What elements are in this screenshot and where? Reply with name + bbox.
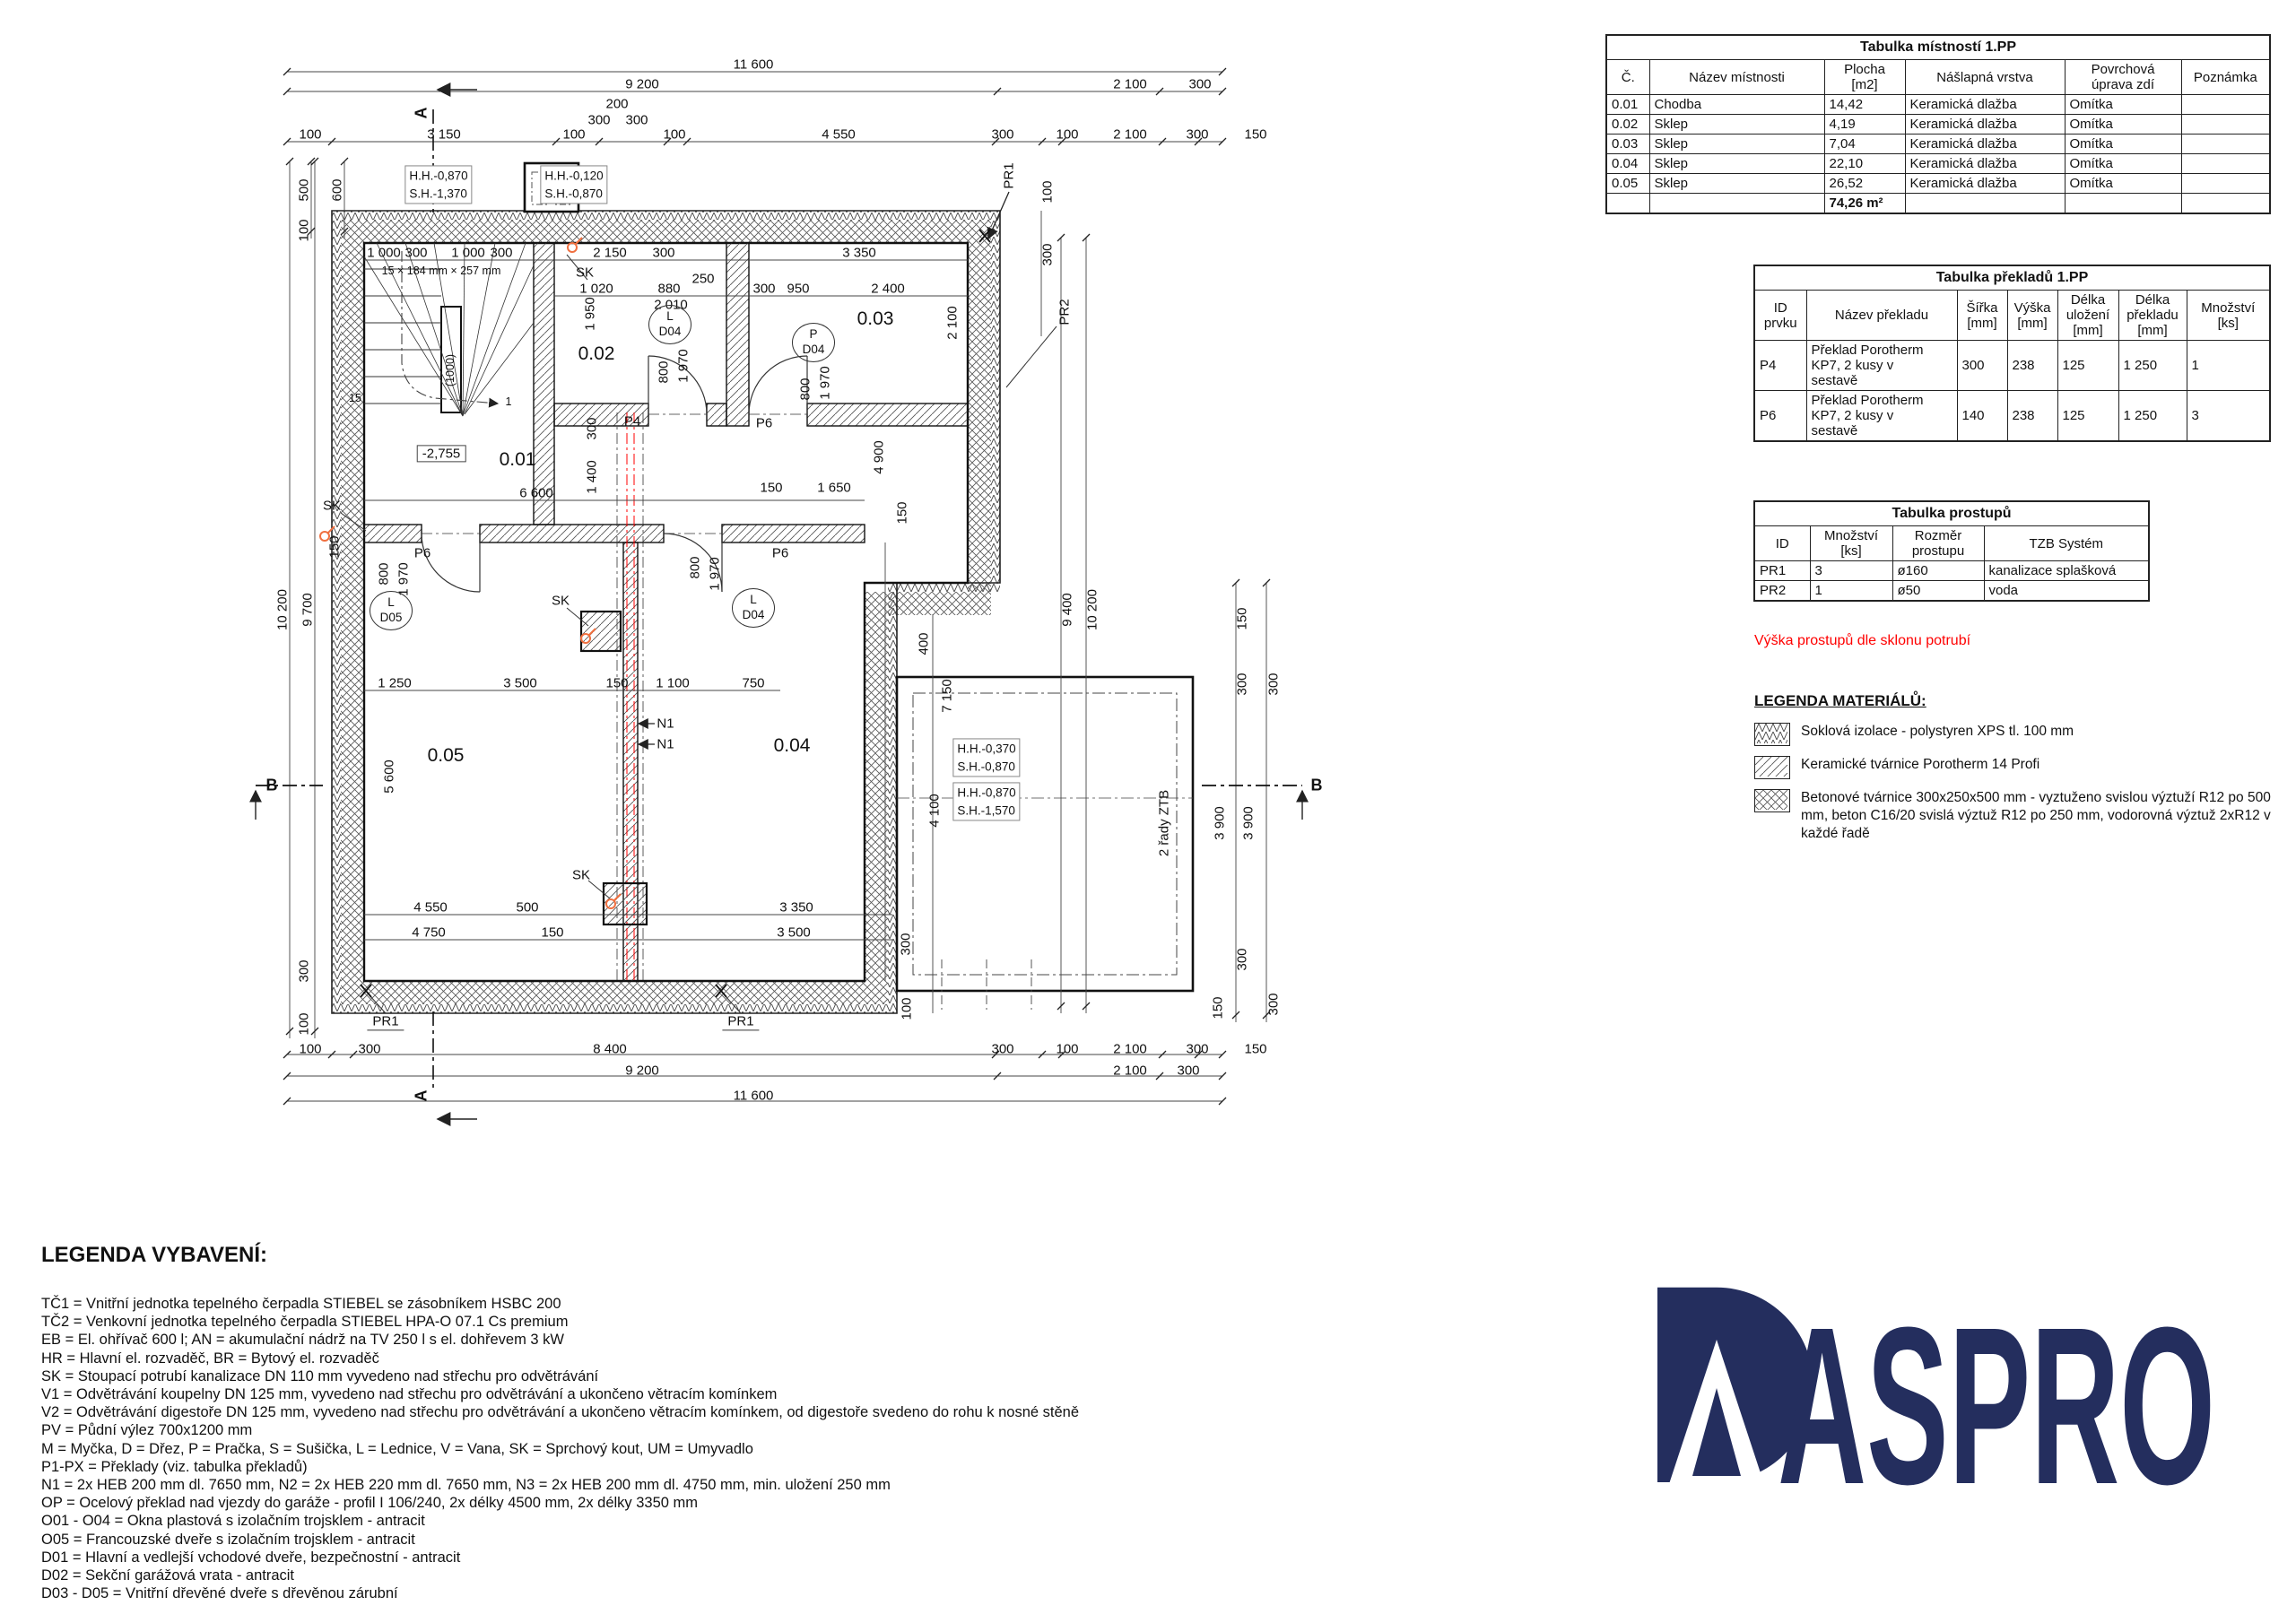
dimension-label: 2 100: [1113, 1041, 1147, 1056]
dimension-label: 300: [490, 245, 512, 260]
table-cell: Keramická dlažba: [1905, 174, 2065, 194]
table-cell: 0.01: [1606, 95, 1649, 115]
column-header: Nášlapná vrstva: [1905, 60, 2065, 95]
dimension-label: 400: [916, 632, 931, 655]
table-cell: Překlad Porotherm KP7, 2 kusy v sestavě: [1806, 391, 1957, 442]
dimension-label: 4 550: [822, 126, 856, 142]
equipment-legend-lines: TČ1 = Vnitřní jednotka tepelného čerpadl…: [41, 1295, 1530, 1602]
dimension-label: 11 600: [734, 56, 774, 72]
column-header: ID: [1754, 526, 1810, 561]
column-header: Výška [mm]: [2007, 291, 2057, 341]
equipment-legend-line: D02 = Sekční garážová vrata - antracit: [41, 1567, 1530, 1584]
room-number-label: 0.03: [857, 308, 894, 330]
table-title: Tabulka místností 1.PP: [1606, 35, 2270, 60]
dimension-label: 2 100: [1113, 1063, 1147, 1078]
table-cell: 0.02: [1606, 115, 1649, 135]
dimension-label: 1 950: [582, 297, 597, 331]
equipment-legend-line: M = Myčka, D = Dřez, P = Pračka, S = Suš…: [41, 1440, 1530, 1458]
table-cell: Sklep: [1649, 174, 1824, 194]
dimension-label: SK: [552, 593, 570, 608]
equipment-legend-line: TČ1 = Vnitřní jednotka tepelného čerpadl…: [41, 1295, 1530, 1313]
logo-text: ASPRO: [1778, 1280, 2215, 1496]
dimension-label: 100: [562, 126, 585, 142]
dimension-label: 950: [787, 281, 809, 296]
table-cell: 14,42: [1824, 95, 1905, 115]
dimension-label: 2 100: [944, 306, 960, 340]
dimension-label: (1000): [444, 354, 457, 386]
dimension-label: 300: [625, 112, 648, 127]
table-cell: [2181, 194, 2270, 214]
dimension-label: 1 970: [396, 562, 411, 596]
dimension-label: 1: [506, 395, 512, 408]
dimension-label: -2,755: [417, 445, 466, 462]
table-row: PR13ø160kanalizace splašková: [1754, 561, 2149, 581]
door-tag: L D04: [732, 588, 775, 628]
equipment-legend-line: P1-PX = Překlady (viz. tabulka překladů): [41, 1458, 1530, 1476]
equipment-legend-line: TČ2 = Venkovní jednotka tepelného čerpad…: [41, 1313, 1530, 1331]
dimension-label: 300: [296, 959, 311, 982]
dimension-label: 300: [991, 1041, 1013, 1056]
table-cell: 0.03: [1606, 135, 1649, 154]
dimension-label: 2 100: [1113, 76, 1147, 91]
table-cell: [2065, 194, 2181, 214]
dimension-label: 100: [296, 1012, 311, 1035]
dimension-label: 100: [663, 126, 685, 142]
equipment-legend-line: EB = El. ohřívač 600 l; AN = akumulační …: [41, 1331, 1530, 1349]
dimension-label: 2 100: [1113, 126, 1147, 142]
dimension-label: 600: [329, 178, 344, 201]
dimension-label: PR1: [722, 1013, 759, 1030]
dimension-label: 9 200: [625, 1063, 659, 1078]
table-cell: 1 250: [2118, 391, 2187, 442]
table-title: Tabulka překladů 1.PP: [1754, 265, 2270, 291]
table-cell: [1905, 194, 2065, 214]
table-cell: voda: [1984, 581, 2149, 602]
table-cell: PR2: [1754, 581, 1810, 602]
table-row: 0.05Sklep26,52Keramická dlažbaOmítka: [1606, 174, 2270, 194]
dimension-label: 3 500: [777, 924, 811, 940]
dimension-label: SK: [576, 265, 594, 280]
dimension-label: 1 970: [817, 366, 832, 400]
equipment-legend-line: O05 = Francouzské dveře s izolačním troj…: [41, 1531, 1530, 1549]
room-number-label: 0.04: [774, 735, 811, 757]
dimension-label: 4 100: [926, 794, 942, 828]
dimension-label: 100: [299, 126, 321, 142]
column-header: TZB Systém: [1984, 526, 2149, 561]
dimension-label: 3 350: [842, 245, 876, 260]
dimension-label: P6: [756, 415, 772, 430]
table-cell: Omítka: [2065, 154, 2181, 174]
dimension-label: 880: [657, 281, 680, 296]
dimension-label: 11 600: [734, 1088, 774, 1103]
level-annotation: H.H.-0,870 S.H.-1,570: [952, 782, 1020, 820]
column-header: ID prvku: [1754, 291, 1806, 341]
table-cell: 74,26 m²: [1824, 194, 1905, 214]
dimension-label: 2 400: [871, 281, 905, 296]
equipment-legend-line: OP = Ocelový překlad nad vjezdy do garáž…: [41, 1494, 1530, 1512]
dimension-label: 300: [1188, 76, 1211, 91]
dimension-label: 150: [1244, 1041, 1266, 1056]
table-cell: 125: [2057, 341, 2118, 391]
material-legend-item: Keramické tvárnice Porotherm 14 Profi: [1754, 756, 2279, 779]
table-cell: 3: [1810, 561, 1892, 581]
dimension-label: 8 400: [593, 1041, 627, 1056]
room-number-label: 0.01: [500, 449, 536, 471]
dimension-label: 800: [376, 562, 391, 585]
door-tag: L D04: [648, 305, 691, 344]
room-number-label: 0.05: [428, 745, 465, 767]
table-cell: [2181, 135, 2270, 154]
dimension-label: 15: [349, 392, 361, 404]
daspro-logo-graphic: ASPRO: [1650, 1280, 2224, 1496]
dimension-label: 2 řady ZTB: [1156, 790, 1171, 856]
table-cell: ø50: [1892, 581, 1984, 602]
equipment-legend-line: HR = Hlavní el. rozvaděč, BR = Bytový el…: [41, 1350, 1530, 1367]
table-cell: Omítka: [2065, 115, 2181, 135]
sk-shaft: [604, 883, 647, 924]
table-cell: [2181, 115, 2270, 135]
dimension-label: 1 000: [367, 245, 401, 260]
table-total-row: 74,26 m²: [1606, 194, 2270, 214]
table-cell: 1 250: [2118, 341, 2187, 391]
dimension-label: 300: [1234, 673, 1249, 695]
table-cell: Omítka: [2065, 174, 2181, 194]
dimension-label: 500: [296, 178, 311, 201]
penetration-note: Výška prostupů dle sklonu potrubí: [1754, 633, 1970, 649]
table-cell: 125: [2057, 391, 2118, 442]
sk-shaft: [581, 612, 621, 651]
drawing-sheet: 11 6009 2002 1003002003003001003 1501001…: [0, 0, 2296, 1623]
table-row: PR21ø50voda: [1754, 581, 2149, 602]
table-cell: [2181, 154, 2270, 174]
column-header: Č.: [1606, 60, 1649, 95]
table-cell: 0.04: [1606, 154, 1649, 174]
interior-wall: [480, 525, 664, 542]
interior-wall: [726, 243, 749, 426]
dimension-label: 200: [605, 96, 628, 111]
dimension-label: 250: [691, 271, 714, 286]
dimension-label: 150: [1234, 607, 1249, 629]
table-cell: ø160: [1892, 561, 1984, 581]
dimension-label: P6: [772, 545, 788, 560]
table-title: Tabulka prostupů: [1754, 501, 2149, 526]
section-mark-label: B: [266, 777, 278, 795]
dimension-label: PR1: [1001, 162, 1016, 188]
table-cell: 238: [2007, 391, 2057, 442]
table-cell: 1: [1810, 581, 1892, 602]
table-row: 0.02Sklep4,19Keramická dlažbaOmítka: [1606, 115, 2270, 135]
dimension-label: SK: [572, 867, 590, 882]
dimension-label: 150: [541, 924, 563, 940]
dimension-label: 100: [899, 997, 914, 1020]
section-mark-label: A: [413, 108, 431, 119]
dimension-label: 100: [299, 1041, 321, 1056]
column-header: Délka překladu [mm]: [2118, 291, 2187, 341]
dimension-label: 3 900: [1212, 806, 1227, 840]
penetrations-table: Tabulka prostupůIDMnožství [ks]Rozměr pr…: [1753, 500, 2150, 602]
dimension-label: P6: [414, 545, 430, 560]
dimension-label: 300: [991, 126, 1013, 142]
dimension-label: 1 250: [378, 675, 412, 690]
table-cell: P4: [1754, 341, 1806, 391]
equipment-legend-title: LEGENDA VYBAVENÍ:: [41, 1243, 1530, 1268]
table-row: P6Překlad Porotherm KP7, 2 kusy v sestav…: [1754, 391, 2270, 442]
table-cell: [1649, 194, 1824, 214]
equipment-legend-line: V2 = Odvětrávání digestoře DN 125 mm, vy…: [41, 1403, 1530, 1421]
table-cell: P6: [1754, 391, 1806, 442]
insulation-hatch-icon: [1754, 723, 1790, 746]
dimension-label: 300: [587, 112, 610, 127]
material-legend-text: Betonové tvárnice 300x250x500 mm - vyztu…: [1801, 789, 2279, 843]
table-cell: 1: [2187, 341, 2270, 391]
dimension-label: 1 970: [675, 349, 691, 383]
dimension-label: 9 400: [1059, 593, 1074, 627]
dimension-label: 10 200: [274, 589, 290, 630]
dimension-label: 100: [1056, 126, 1078, 142]
equipment-legend-line: O01 - O04 = Okna plastová s izolačním tr…: [41, 1512, 1530, 1530]
dimension-label: 300: [404, 245, 427, 260]
table-cell: 140: [1957, 391, 2007, 442]
stair-risers: [364, 269, 441, 404]
dimension-label: 6 600: [519, 485, 553, 500]
dimension-label: 100: [1056, 1041, 1078, 1056]
column-header: Poznámka: [2181, 60, 2270, 95]
table-row: P4Překlad Porotherm KP7, 2 kusy v sestav…: [1754, 341, 2270, 391]
ceramic-hatch-icon: [1754, 756, 1790, 779]
table-cell: kanalizace splašková: [1984, 561, 2149, 581]
dimension-label: 1 400: [584, 460, 599, 494]
table-cell: 22,10: [1824, 154, 1905, 174]
door-tag: P D04: [792, 323, 835, 362]
dimension-label: 1 020: [579, 281, 613, 296]
dimension-label: 1 000: [451, 245, 485, 260]
dimension-label: 2 150: [593, 245, 627, 260]
dimension-label: 300: [1186, 126, 1208, 142]
level-annotation: H.H.-0,120 S.H.-0,870: [540, 165, 607, 204]
material-legend-text: Soklová izolace - polystyren XPS tl. 100…: [1801, 723, 2074, 741]
dimension-label: 150: [1210, 996, 1225, 1019]
table-cell: Sklep: [1649, 154, 1824, 174]
table-cell: 238: [2007, 341, 2057, 391]
rooms-table: Tabulka místností 1.PPČ.Název místnostiP…: [1605, 34, 2271, 214]
table-row: 0.03Sklep7,04Keramická dlažbaOmítka: [1606, 135, 2270, 154]
dimension-label: N1: [657, 736, 674, 751]
table-cell: Chodba: [1649, 95, 1824, 115]
column-header: Množství [ks]: [2187, 291, 2270, 341]
dimension-label: 4 750: [412, 924, 446, 940]
dimension-label: 800: [797, 378, 813, 400]
dimension-label: 3 350: [779, 899, 813, 915]
column-header: Název místnosti: [1649, 60, 1824, 95]
table-cell: Keramická dlažba: [1905, 95, 2065, 115]
dimension-label: 10 200: [1084, 589, 1100, 630]
dimension-label: 750: [742, 675, 764, 690]
dimension-label: 1 650: [817, 480, 851, 495]
dimension-label: 150: [894, 501, 909, 524]
ztb-structure: [897, 677, 1193, 991]
table-cell: Keramická dlažba: [1905, 154, 2065, 174]
dimension-label: 300: [898, 933, 913, 955]
table-row: 0.01Chodba14,42Keramická dlažbaOmítka: [1606, 95, 2270, 115]
material-legend-item: Soklová izolace - polystyren XPS tl. 100…: [1754, 723, 2279, 746]
dimension-label: PR1: [367, 1013, 404, 1030]
dimension-label: 500: [516, 899, 538, 915]
table-cell: 0.05: [1606, 174, 1649, 194]
dimension-label: 9 700: [300, 593, 315, 627]
section-mark-label: A: [413, 1090, 431, 1102]
material-legend-title: LEGENDA MATERIÁLŮ:: [1754, 692, 2279, 710]
table-cell: 3: [2187, 391, 2270, 442]
dimension-label: 800: [656, 360, 671, 383]
dimension-label: 300: [1177, 1063, 1199, 1078]
dimension-label: 150: [1244, 126, 1266, 142]
daspro-logo: ASPRO: [1650, 1280, 2224, 1496]
dimension-label: 3 500: [503, 675, 537, 690]
dimension-label: 9 200: [625, 76, 659, 91]
lintels-table: Tabulka překladů 1.PPID prvkuNázev překl…: [1753, 265, 2271, 442]
equipment-legend-line: D01 = Hlavní a vedlejší vchodové dveře, …: [41, 1549, 1530, 1567]
material-legend: LEGENDA MATERIÁLŮ: Soklová izolace - pol…: [1754, 692, 2279, 853]
level-annotation: H.H.-0,370 S.H.-0,870: [952, 738, 1020, 777]
material-legend-text: Keramické tvárnice Porotherm 14 Profi: [1801, 756, 2039, 774]
dimension-label: 300: [1186, 1041, 1208, 1056]
table-cell: [2181, 174, 2270, 194]
dimension-label: 300: [358, 1041, 380, 1056]
interior-wall: [364, 525, 422, 542]
concrete-hatch-icon: [1754, 789, 1790, 812]
dimension-label: 3 150: [427, 126, 461, 142]
dimension-label: 7 150: [939, 679, 954, 713]
table-cell: PR1: [1754, 561, 1810, 581]
table-cell: 26,52: [1824, 174, 1905, 194]
table-cell: [1606, 194, 1649, 214]
dimension-label: 100: [296, 219, 311, 241]
interior-wall: [534, 243, 554, 525]
table-cell: Sklep: [1649, 115, 1824, 135]
column-header: Název překladu: [1806, 291, 1957, 341]
dimension-label: 3 900: [1240, 806, 1256, 840]
room-number-label: 0.02: [578, 343, 615, 365]
interior-wall: [807, 404, 968, 426]
dimension-label: N1: [657, 716, 674, 731]
equipment-legend-line: D03 - D05 = Vnitřní dřevěné dveře s dřev…: [41, 1584, 1530, 1602]
table-row: 0.04Sklep22,10Keramická dlažbaOmítka: [1606, 154, 2270, 174]
column-header: Povrchová úprava zdí: [2065, 60, 2181, 95]
column-header: Délka uložení [mm]: [2057, 291, 2118, 341]
dimension-label: 800: [687, 556, 702, 578]
door-axes: [422, 414, 807, 534]
dimension-label: 300: [1265, 673, 1281, 695]
door-tag: L D05: [370, 591, 413, 630]
column-header: Plocha [m2]: [1824, 60, 1905, 95]
dimension-label: 100: [1039, 180, 1055, 203]
table-cell: Keramická dlažba: [1905, 115, 2065, 135]
dimension-label: 5 600: [381, 759, 396, 794]
interior-wall: [722, 525, 865, 542]
table-cell: [2181, 95, 2270, 115]
column-header: Šířka [mm]: [1957, 291, 2007, 341]
dimension-label: 1 100: [656, 675, 690, 690]
dimension-label: PR2: [1057, 299, 1072, 325]
equipment-legend-line: N1 = 2x HEB 200 mm dl. 7650 mm, N2 = 2x …: [41, 1476, 1530, 1494]
dimension-label: 150: [605, 675, 628, 690]
material-legend-item: Betonové tvárnice 300x250x500 mm - vyztu…: [1754, 789, 2279, 843]
section-mark-label: B: [1311, 777, 1323, 795]
dimension-label: 150: [760, 480, 782, 495]
equipment-legend-line: SK = Stoupací potrubí kanalizace DN 110 …: [41, 1367, 1530, 1385]
table-cell: Omítka: [2065, 95, 2181, 115]
sk-orange-markers: [320, 238, 621, 908]
dimension-label: 4 550: [413, 899, 448, 915]
floor-plan-drawing: [36, 27, 1363, 1166]
dimension-label: P4: [624, 413, 640, 429]
dimension-label: 300: [752, 281, 775, 296]
column-header: Rozměr prostupu: [1892, 526, 1984, 561]
table-cell: Keramická dlažba: [1905, 135, 2065, 154]
table-cell: 300: [1957, 341, 2007, 391]
dimension-label: 150: [326, 535, 342, 558]
equipment-legend-line: PV = Půdní výlez 700x1200 mm: [41, 1421, 1530, 1439]
table-cell: 4,19: [1824, 115, 1905, 135]
dimension-label: 300: [1234, 948, 1249, 970]
dimension-label: 300: [1265, 993, 1281, 1015]
floor-plan: 11 6009 2002 1003002003003001003 1501001…: [36, 27, 1363, 1166]
table-cell: Omítka: [2065, 135, 2181, 154]
equipment-legend-line: V1 = Odvětrávání koupelny DN 125 mm, vyv…: [41, 1385, 1530, 1403]
equipment-legend: LEGENDA VYBAVENÍ: TČ1 = Vnitřní jednotka…: [41, 1243, 1530, 1602]
table-cell: Překlad Porotherm KP7, 2 kusy v sestavě: [1806, 341, 1957, 391]
dimension-label: 300: [584, 417, 599, 439]
dimension-label: 15 × 184 mm × 257 mm: [382, 265, 501, 277]
dimension-label: 300: [652, 245, 674, 260]
column-header: Množství [ks]: [1810, 526, 1892, 561]
dimension-label: 4 900: [871, 440, 886, 474]
table-cell: 7,04: [1824, 135, 1905, 154]
dimension-label: 300: [1039, 243, 1055, 265]
dimension-label: SK: [323, 498, 341, 513]
table-cell: Sklep: [1649, 135, 1824, 154]
dimension-label: 1 970: [707, 557, 722, 591]
level-annotation: H.H.-0,870 S.H.-1,370: [404, 165, 472, 204]
